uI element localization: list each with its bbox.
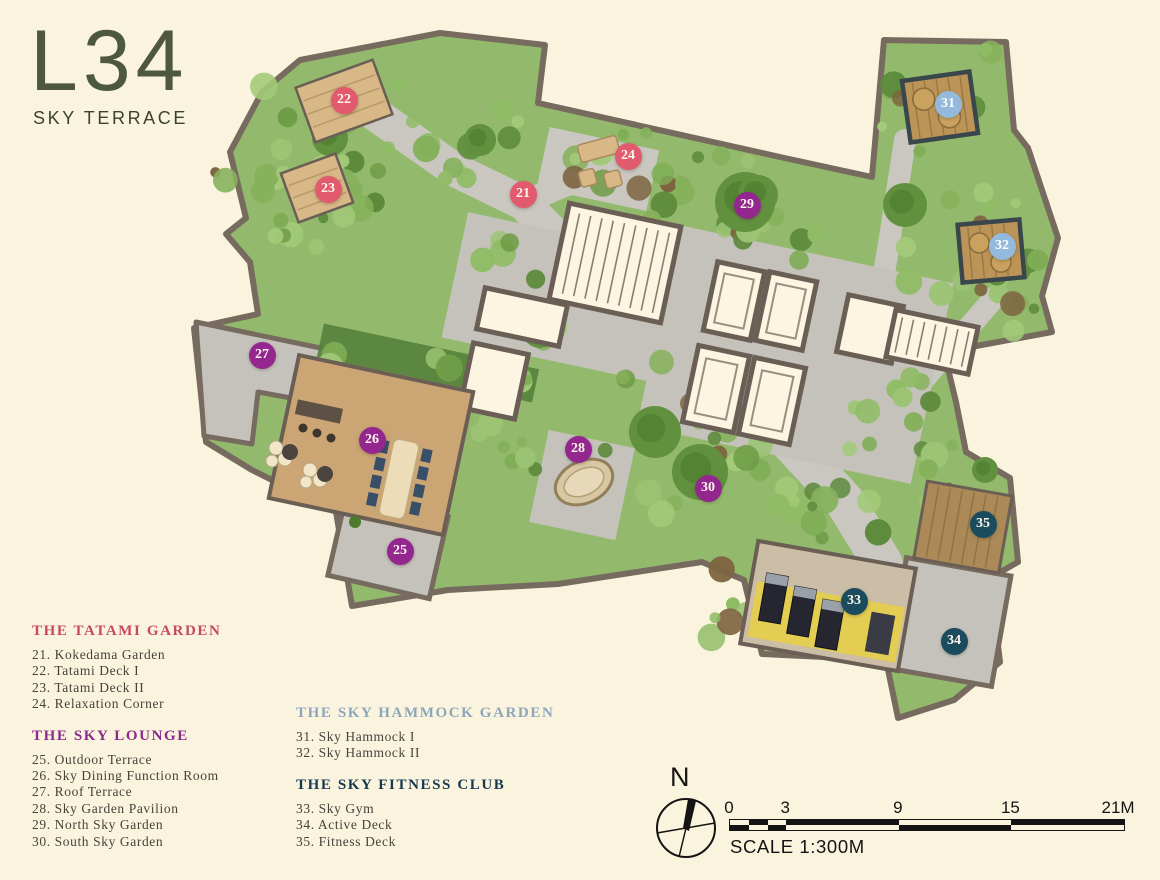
page-background: L34 SKY TERRACE THE TATAMI GARDEN21. Kok… <box>0 0 1160 880</box>
scale-tick-label: 15 <box>1001 798 1020 818</box>
legend-heading: THE TATAMI GARDEN <box>32 623 294 640</box>
plan-marker-35: 35 <box>970 511 997 538</box>
legend-heading: THE SKY FITNESS CLUB <box>296 777 558 794</box>
plan-marker-29: 29 <box>734 192 761 219</box>
legend-heading: THE SKY LOUNGE <box>32 728 294 745</box>
plan-marker-33: 33 <box>841 588 868 615</box>
legend-item: 34. Active Deck <box>296 817 558 833</box>
plan-marker-21: 21 <box>510 181 537 208</box>
plan-marker-22: 22 <box>331 87 358 114</box>
plan-marker-27: 27 <box>249 342 276 369</box>
legend-item: 32. Sky Hammock II <box>296 745 558 761</box>
legend-item: 23. Tatami Deck II <box>32 680 294 696</box>
scale-tick-label: 21M <box>1101 798 1134 818</box>
plan-marker-31: 31 <box>935 91 962 118</box>
legend-item: 21. Kokedama Garden <box>32 647 294 663</box>
scale-tick-label: 9 <box>893 798 902 818</box>
legend-item: 22. Tatami Deck I <box>32 663 294 679</box>
legend-item: 26. Sky Dining Function Room <box>32 768 294 784</box>
legend-item: 35. Fitness Deck <box>296 834 558 850</box>
legend-column-1: THE TATAMI GARDEN21. Kokedama Garden22. … <box>32 623 294 865</box>
legend-group: THE TATAMI GARDEN21. Kokedama Garden22. … <box>32 623 294 713</box>
legend-item: 30. South Sky Garden <box>32 834 294 850</box>
legend-item: 24. Relaxation Corner <box>32 696 294 712</box>
scale-bar-ruler <box>729 819 1125 831</box>
legend-item: 29. North Sky Garden <box>32 817 294 833</box>
plan-marker-23: 23 <box>315 176 342 203</box>
plan-marker-34: 34 <box>941 628 968 655</box>
legend-group: THE SKY HAMMOCK GARDEN31. Sky Hammock I3… <box>296 705 558 762</box>
plan-marker-24: 24 <box>615 143 642 170</box>
legend-item: 27. Roof Terrace <box>32 784 294 800</box>
north-label: N <box>670 762 690 793</box>
legend-item: 25. Outdoor Terrace <box>32 752 294 768</box>
level-title: L34 <box>30 18 189 104</box>
legend-group: THE SKY FITNESS CLUB33. Sky Gym34. Activ… <box>296 777 558 850</box>
title-block: L34 SKY TERRACE <box>30 18 189 129</box>
legend-group: THE SKY LOUNGE25. Outdoor Terrace26. Sky… <box>32 728 294 850</box>
level-subtitle: SKY TERRACE <box>33 108 189 129</box>
plan-marker-26: 26 <box>359 427 386 454</box>
plan-marker-25: 25 <box>387 538 414 565</box>
legend-item: 31. Sky Hammock I <box>296 729 558 745</box>
plan-marker-32: 32 <box>989 233 1016 260</box>
legend-item: 33. Sky Gym <box>296 801 558 817</box>
scale-tick-label: 3 <box>781 798 790 818</box>
fitness-deck <box>914 481 1012 573</box>
plan-marker-30: 30 <box>695 475 722 502</box>
plan-marker-28: 28 <box>565 436 592 463</box>
legend-column-2: THE SKY HAMMOCK GARDEN31. Sky Hammock I3… <box>296 705 558 865</box>
scale-tick-label: 0 <box>724 798 733 818</box>
legend-item: 28. Sky Garden Pavilion <box>32 801 294 817</box>
legend-heading: THE SKY HAMMOCK GARDEN <box>296 705 558 722</box>
scale-caption: SCALE 1:300M <box>730 836 865 858</box>
scale-bar: SCALE 1:300M 0391521M <box>729 798 1149 858</box>
